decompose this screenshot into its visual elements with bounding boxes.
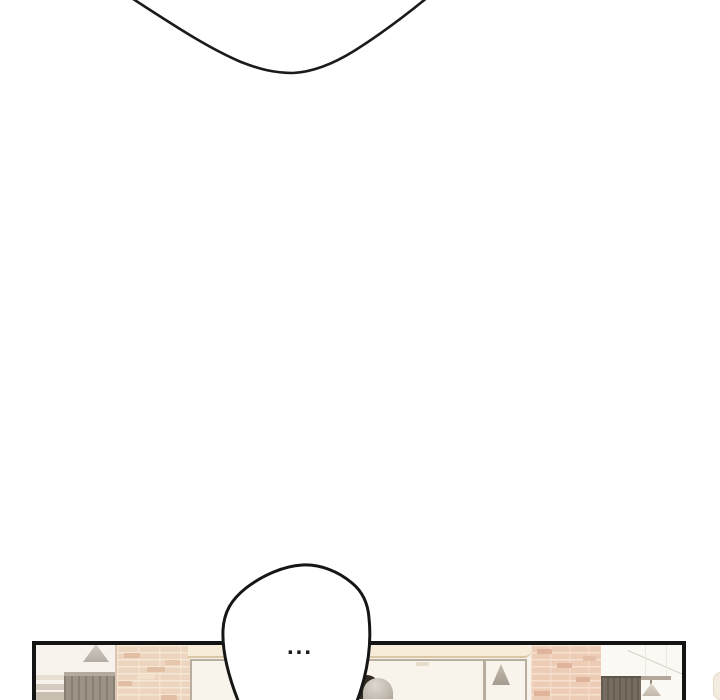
wall-slat	[36, 675, 66, 680]
brick	[583, 656, 596, 661]
ceiling-reflection-line	[628, 650, 682, 676]
window-mullion	[645, 645, 646, 677]
window-pane-divider	[483, 661, 486, 700]
brick	[165, 660, 180, 665]
large-balloon-bottom-arc	[130, 0, 428, 73]
hanging-drape	[601, 676, 641, 700]
brick-pillar-right	[531, 645, 601, 700]
window-triangle-ornament-icon	[492, 664, 510, 685]
brick	[118, 681, 132, 686]
window-sticker	[416, 662, 429, 666]
window-mullion	[666, 645, 667, 677]
brick-pillar-left	[115, 645, 190, 700]
roof-triangle-ornament-icon	[83, 644, 109, 662]
brick	[124, 653, 140, 658]
brick	[161, 695, 177, 700]
line-art-overlay	[0, 0, 720, 700]
brick	[557, 663, 572, 668]
wall-slat	[36, 684, 66, 690]
side-window-interior	[601, 645, 682, 700]
brick	[147, 667, 165, 672]
shop-fascia-awning	[188, 645, 531, 658]
comic-page: ...	[0, 0, 720, 700]
wooden-crate	[64, 672, 116, 700]
shop-window	[190, 659, 527, 700]
brick	[137, 674, 155, 679]
brick	[576, 677, 590, 682]
brick	[537, 649, 552, 654]
next-panel-edge	[713, 672, 720, 700]
pendant-lamp-icon	[642, 683, 661, 696]
storefront-panel	[32, 641, 686, 700]
round-lantern	[363, 678, 393, 699]
speech-bubble-text: ...	[277, 634, 323, 660]
brick	[534, 691, 550, 696]
wall-slat	[36, 692, 66, 700]
